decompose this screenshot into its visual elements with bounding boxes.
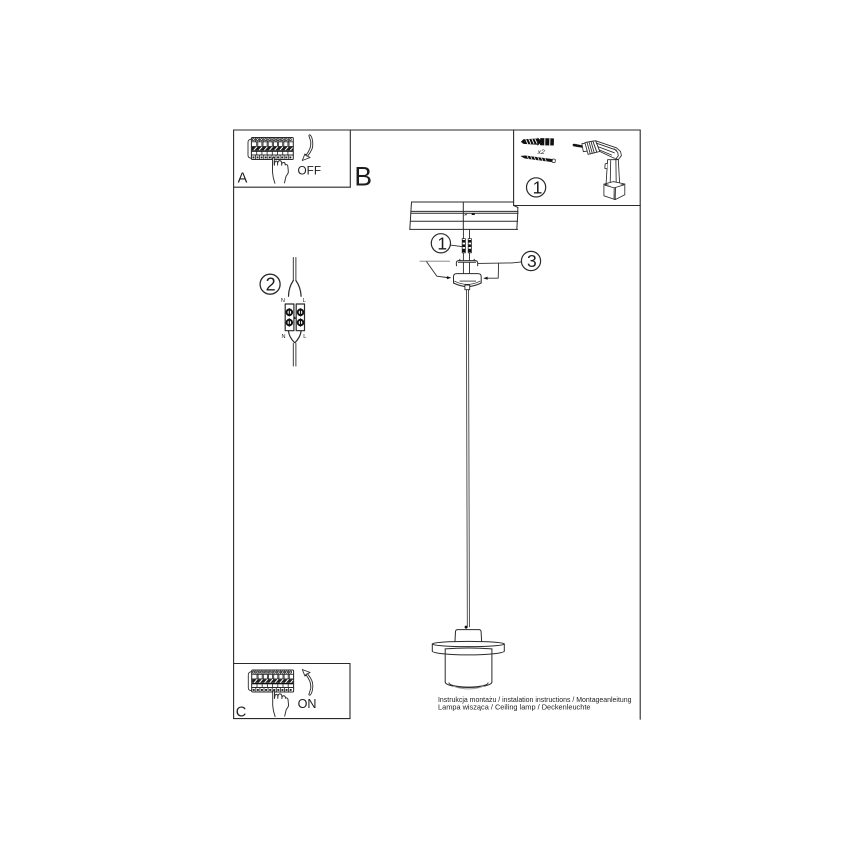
svg-text:N: N <box>282 334 286 340</box>
svg-text:ON: ON <box>298 697 317 711</box>
svg-text:3: 3 <box>527 251 537 271</box>
svg-text:N: N <box>281 298 285 304</box>
svg-text:2: 2 <box>266 275 276 295</box>
svg-text:OFF: OFF <box>298 164 322 178</box>
svg-text:Lampa wisząca / Ceiling lamp /: Lampa wisząca / Ceiling lamp / Deckenleu… <box>438 703 591 712</box>
svg-text:A: A <box>238 171 248 187</box>
svg-text:C: C <box>236 704 247 720</box>
svg-text:L: L <box>303 298 306 304</box>
svg-text:1: 1 <box>437 234 447 254</box>
svg-text:L: L <box>303 334 306 340</box>
svg-text:B: B <box>354 161 372 191</box>
svg-text:1: 1 <box>533 178 543 198</box>
svg-text:x2: x2 <box>537 149 545 156</box>
